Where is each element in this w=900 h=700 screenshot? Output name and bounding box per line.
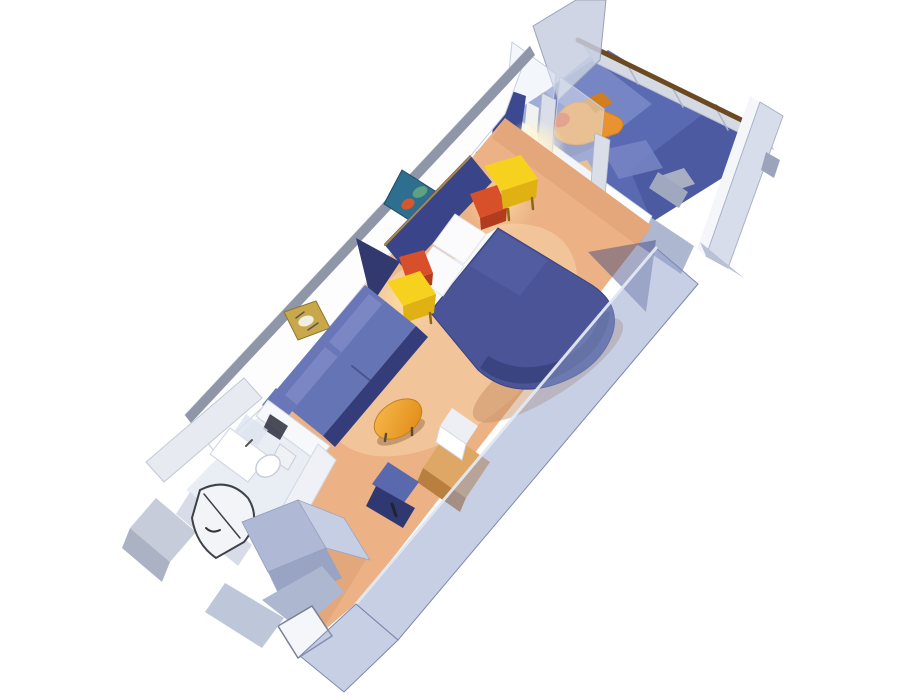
stateroom-3d-isometric-rendering [0, 0, 900, 700]
stateroom-rendering-canvas [0, 0, 900, 700]
entry-side-wall [205, 583, 284, 648]
